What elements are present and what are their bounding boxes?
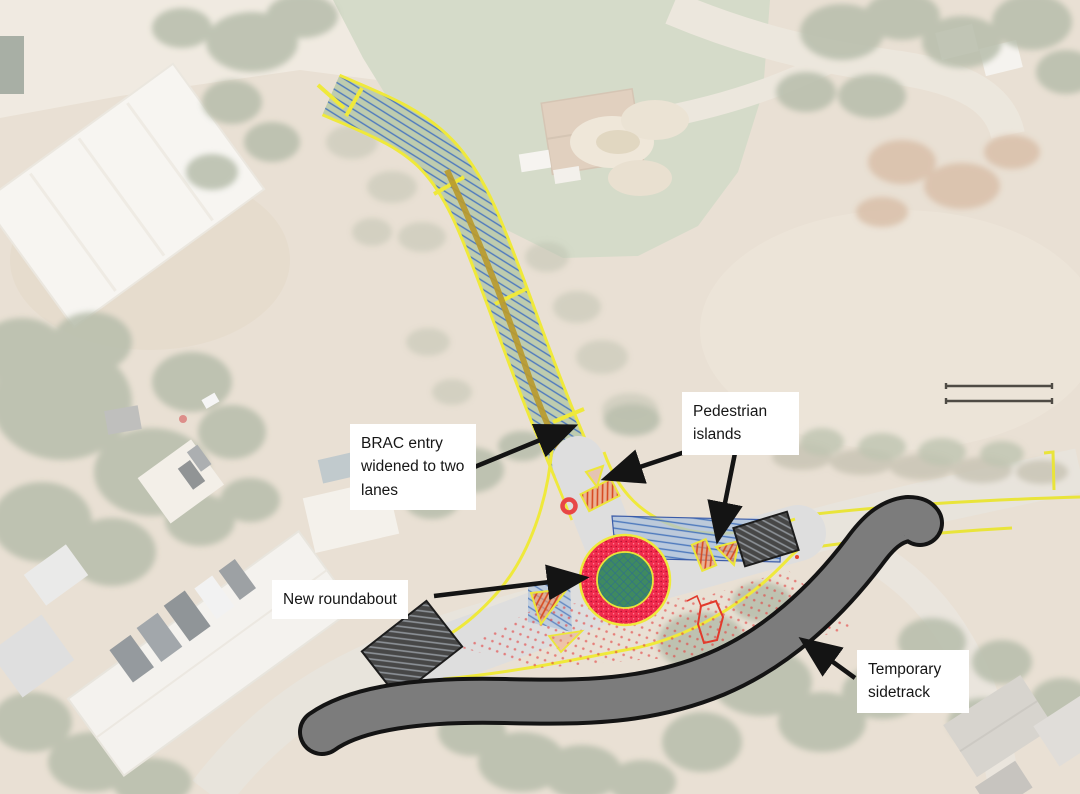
callout-temporary-sidetrack: Temporary sidetrack: [857, 650, 969, 713]
callout-brac-entry: BRAC entry widened to two lanes: [350, 424, 476, 510]
callout-pedestrian-islands: Pedestrian islands: [682, 392, 799, 455]
construction-plan-map: BRAC entry widened to two lanes Pedestri…: [0, 0, 1080, 794]
callout-new-roundabout: New roundabout: [272, 580, 408, 619]
roundabout-centre-island: [597, 552, 653, 608]
new-roundabout-shape: [580, 535, 670, 625]
